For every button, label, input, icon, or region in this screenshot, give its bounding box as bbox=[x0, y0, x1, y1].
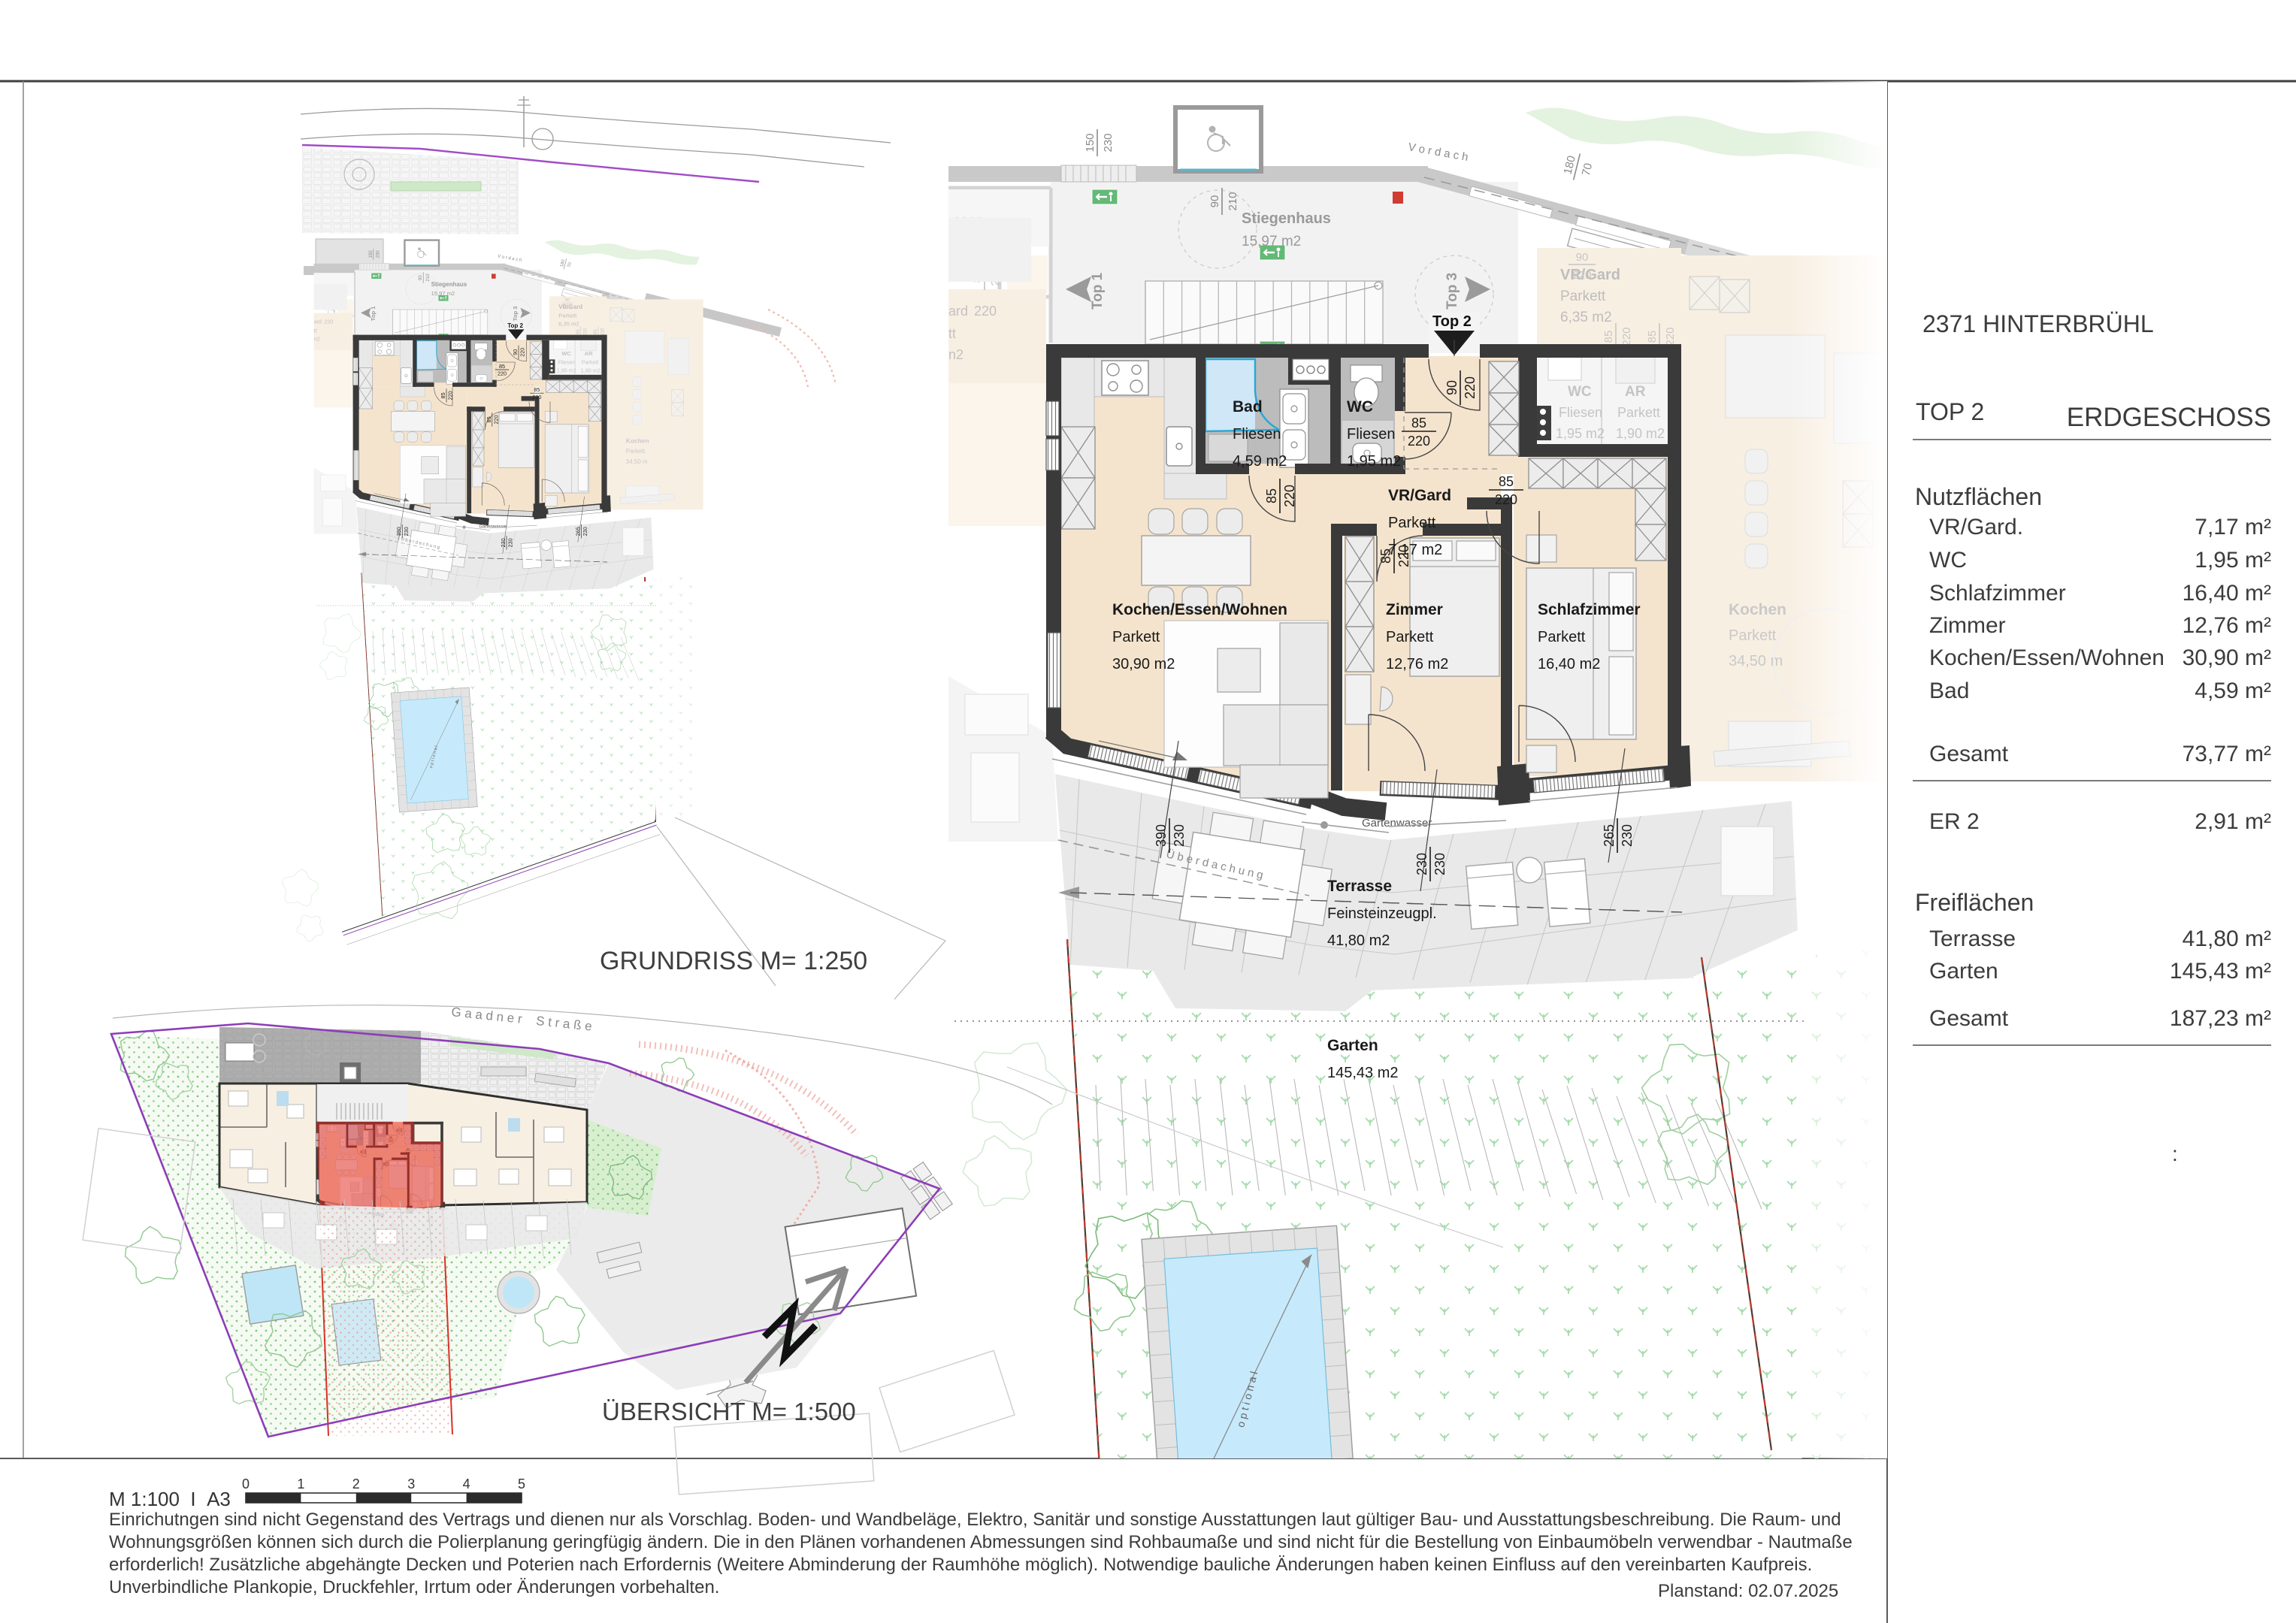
svg-text:12,76 m2: 12,76 m2 bbox=[1386, 656, 1448, 672]
svg-text:2: 2 bbox=[352, 1476, 360, 1492]
svg-text:1,95 m2: 1,95 m2 bbox=[1347, 453, 1401, 470]
svg-text:Bad: Bad bbox=[1233, 398, 1263, 416]
svg-text:4,59 m2: 4,59 m2 bbox=[1233, 453, 1287, 470]
svg-text:1: 1 bbox=[297, 1476, 304, 1492]
svg-text:Garten: Garten bbox=[1327, 1037, 1378, 1054]
svg-text:Parkett: Parkett bbox=[1386, 629, 1434, 645]
svg-text:Parkett: Parkett bbox=[1538, 629, 1586, 645]
svg-text:5: 5 bbox=[518, 1476, 525, 1492]
svg-text:7,17 m2: 7,17 m2 bbox=[1388, 542, 1442, 558]
svg-text:Parkett: Parkett bbox=[1112, 629, 1160, 645]
svg-text:16,40 m2: 16,40 m2 bbox=[1538, 656, 1600, 672]
svg-text:Feinsteinzeugpl.: Feinsteinzeugpl. bbox=[1327, 905, 1437, 922]
svg-text:Fliesen: Fliesen bbox=[1233, 426, 1281, 443]
svg-text:Zimmer: Zimmer bbox=[1386, 601, 1443, 618]
svg-text:30,90 m2: 30,90 m2 bbox=[1112, 656, 1175, 672]
svg-text:Fliesen: Fliesen bbox=[1347, 426, 1395, 443]
svg-text:WC: WC bbox=[1347, 398, 1373, 416]
svg-text:4: 4 bbox=[463, 1476, 470, 1492]
svg-text:41,80 m2: 41,80 m2 bbox=[1327, 932, 1390, 949]
svg-text:0: 0 bbox=[242, 1476, 250, 1492]
svg-text:3: 3 bbox=[407, 1476, 415, 1492]
svg-text:Kochen/Essen/Wohnen: Kochen/Essen/Wohnen bbox=[1112, 601, 1287, 618]
svg-text:VR/Gard: VR/Gard bbox=[1388, 487, 1451, 504]
svg-text:Terrasse: Terrasse bbox=[1327, 878, 1392, 895]
svg-text:Schlafzimmer: Schlafzimmer bbox=[1538, 601, 1641, 618]
svg-text:145,43 m2: 145,43 m2 bbox=[1327, 1065, 1399, 1081]
svg-text:Parkett: Parkett bbox=[1388, 515, 1436, 531]
